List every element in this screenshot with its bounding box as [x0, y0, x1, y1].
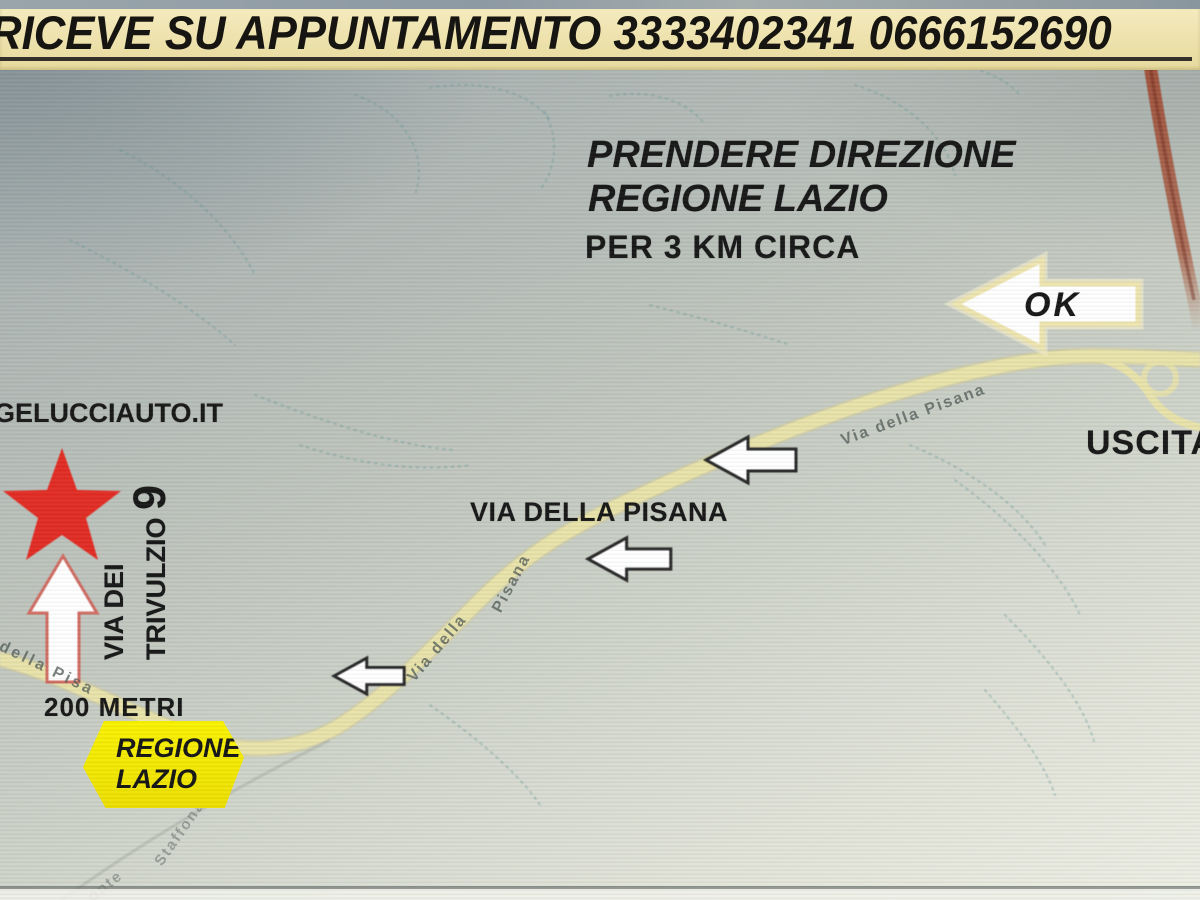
street-name-vertical: VIA DEI TRIVULZIO 9 [96, 440, 172, 660]
instruction-line-3: PER 3 KM CIRCA [585, 229, 860, 266]
appointment-banner: RICEVE SU APPUNTAMENTO 3333402341 066615… [0, 9, 1200, 70]
road-name-label: VIA DELLA PISANA [470, 497, 728, 528]
banner-underline [0, 57, 1192, 61]
instruction-line-1: PRENDERE DIREZIONE [587, 134, 1016, 177]
badge-line-1: REGIONE [116, 733, 244, 764]
distance-label: 200 METRI [44, 692, 185, 723]
ok-label: OK [1024, 286, 1081, 325]
appointment-text: RICEVE SU APPUNTAMENTO 3333402341 066615… [0, 7, 1112, 59]
street-line-1: VIA DEI [96, 440, 132, 660]
website-label: GELUCCIAUTO.IT [0, 398, 223, 429]
exit-label: USCITA [1086, 424, 1200, 463]
street-number: 9 [124, 485, 175, 510]
highway-centerline [1149, 58, 1194, 300]
map-directions-screenshot: della Pisa Via della Pisana Via della Pi… [0, 0, 1200, 900]
map-border-margin [0, 889, 1200, 900]
badge-line-2: LAZIO [116, 764, 244, 795]
roundabout [1144, 362, 1176, 394]
left-arrow-icon-2 [588, 538, 671, 580]
instruction-line-2: REGIONE LAZIO [588, 178, 888, 221]
street-line-2: TRIVULZIO [141, 518, 171, 661]
regione-lazio-badge: REGIONE LAZIO [83, 721, 244, 808]
